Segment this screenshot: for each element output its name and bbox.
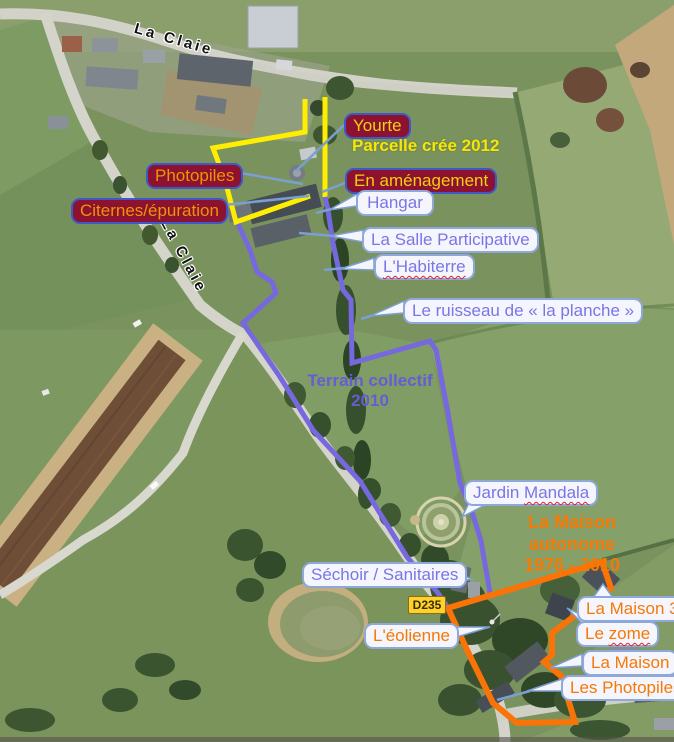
- callout-eolienne: L'éolienne: [364, 623, 459, 649]
- callout-la-maison: La Maison: [582, 650, 674, 676]
- label-terrain-collectif: Terrain collectif 2010: [293, 371, 447, 412]
- callout-les-photopiles: Les Photopiles: [561, 675, 674, 701]
- callout-hangar: Hangar: [356, 190, 434, 216]
- callout-zome-word: Le: [585, 624, 604, 643]
- callout-yourte: Yourte: [344, 113, 411, 139]
- callout-habiterre: L'Habiterre: [374, 254, 475, 280]
- label-terrain-collectif-line1: Terrain collectif: [293, 371, 447, 391]
- satellite-map[interactable]: La Claie La Claie Parcelle crée 2012 Ter…: [0, 0, 674, 742]
- label-maison-autonome-line2: 1976 - 2010: [483, 555, 661, 577]
- callout-maison-3e: La Maison 3E: [577, 596, 674, 622]
- road-sign-d235: D235: [408, 596, 446, 614]
- callout-sechoir-sanitaires: Séchoir / Sanitaires: [302, 562, 467, 588]
- label-maison-autonome-line1: La Maison autonome: [483, 512, 661, 555]
- callout-jardin-word: Jardin: [473, 483, 519, 502]
- callout-jardin-mandala: Jardin Mandala: [464, 480, 598, 506]
- label-maison-autonome: La Maison autonome 1976 - 2010: [483, 512, 661, 577]
- callout-zome-misspelled-word: zome: [609, 624, 651, 643]
- callout-citernes-epuration: Citernes/épuration: [71, 198, 228, 224]
- callout-ruisseau: Le ruisseau de « la planche »: [403, 298, 643, 324]
- label-terrain-collectif-line2: 2010: [293, 391, 447, 411]
- callout-jardin-misspelled-word: Mandala: [524, 483, 589, 502]
- label-parcelle-cree-2012: Parcelle crée 2012: [352, 136, 499, 156]
- callout-photopiles: Photopiles: [146, 163, 243, 189]
- callout-salle-participative: La Salle Participative: [362, 227, 539, 253]
- callout-le-zome: Le zome: [576, 621, 659, 647]
